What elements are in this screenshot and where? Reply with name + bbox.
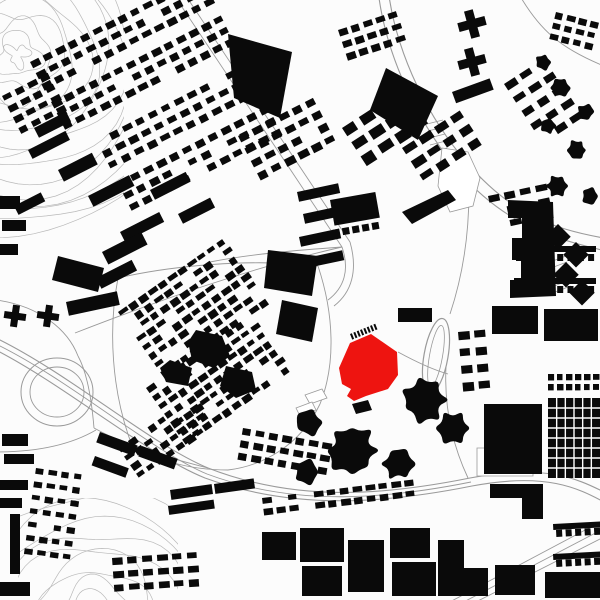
site-plan-image (0, 0, 600, 600)
figure-ground-map (0, 0, 600, 600)
building-layer (0, 0, 600, 598)
site-layer (339, 334, 398, 401)
highlighted-site-building (339, 334, 398, 401)
